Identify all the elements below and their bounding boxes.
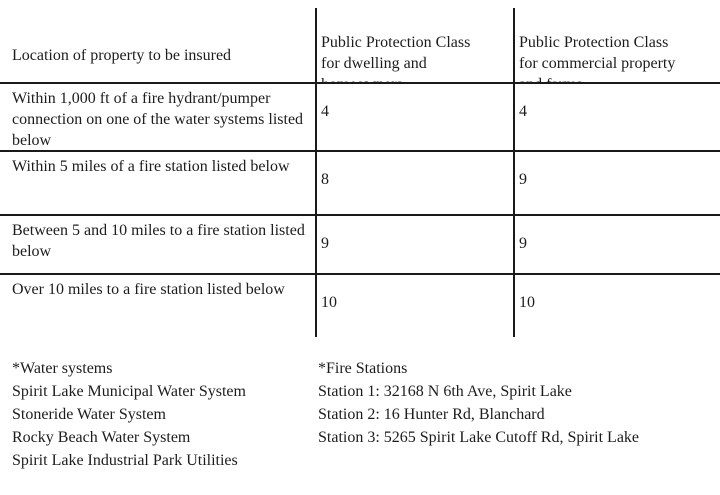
document-page: Location of property to be insured Publi… xyxy=(0,0,720,495)
table-row-commercial-class: 10 xyxy=(513,273,720,337)
row3-dwelling-value: 9 xyxy=(321,235,329,252)
table-row-location: Within 1,000 ft of a fire hydrant/pumper… xyxy=(0,82,315,150)
water-systems-list: *Water systems Spirit Lake Municipal Wat… xyxy=(12,357,312,472)
water-system-item: Spirit Lake Municipal Water System xyxy=(12,380,312,403)
table-row-commercial-class: 4 xyxy=(513,82,720,150)
row4-dwelling-value: 10 xyxy=(321,294,337,311)
table-row-dwelling-class: 10 xyxy=(315,273,513,337)
header-commercial-cell: Public Protection Class for commercial p… xyxy=(513,8,720,82)
table-row-dwelling-class: 8 xyxy=(315,150,513,214)
row2-location-text: Within 5 miles of a fire station listed … xyxy=(12,158,290,175)
header-dwelling-label: Public Protection Class for dwelling and… xyxy=(321,34,470,82)
fire-station-item: Station 1: 32168 N 6th Ave, Spirit Lake xyxy=(318,380,718,403)
row1-location-text: Within 1,000 ft of a fire hydrant/pumper… xyxy=(12,90,303,149)
header-location-label: Location of property to be insured xyxy=(12,45,231,66)
table-row-location: Over 10 miles to a fire station listed b… xyxy=(0,273,315,337)
table-row-commercial-class: 9 xyxy=(513,214,720,273)
water-system-item: Rocky Beach Water System xyxy=(12,426,312,449)
water-systems-title: *Water systems xyxy=(12,357,312,380)
ppc-table: Location of property to be insured Publi… xyxy=(0,8,720,337)
header-dwelling-cell: Public Protection Class for dwelling and… xyxy=(315,8,513,82)
fire-stations-list: *Fire Stations Station 1: 32168 N 6th Av… xyxy=(318,357,718,449)
row4-location-text: Over 10 miles to a fire station listed b… xyxy=(12,281,285,298)
row1-commercial-value: 4 xyxy=(519,103,527,120)
fire-stations-title: *Fire Stations xyxy=(318,357,718,380)
row2-commercial-value: 9 xyxy=(519,171,527,188)
header-commercial-label: Public Protection Class for commercial p… xyxy=(519,34,675,82)
row2-dwelling-value: 8 xyxy=(321,171,329,188)
water-system-item: Stoneride Water System xyxy=(12,403,312,426)
row3-commercial-value: 9 xyxy=(519,235,527,252)
fire-station-item: Station 3: 5265 Spirit Lake Cutoff Rd, S… xyxy=(318,426,718,449)
fire-station-item: Station 2: 16 Hunter Rd, Blanchard xyxy=(318,403,718,426)
table-row-location: Within 5 miles of a fire station listed … xyxy=(0,150,315,214)
table-row-dwelling-class: 9 xyxy=(315,214,513,273)
row3-location-text: Between 5 and 10 miles to a fire station… xyxy=(12,222,305,260)
row1-dwelling-value: 4 xyxy=(321,103,329,120)
table-row-dwelling-class: 4 xyxy=(315,82,513,150)
water-system-item: Spirit Lake Industrial Park Utilities xyxy=(12,449,312,472)
row4-commercial-value: 10 xyxy=(519,294,535,311)
table-row-location: Between 5 and 10 miles to a fire station… xyxy=(0,214,315,273)
header-location-cell: Location of property to be insured xyxy=(0,8,315,82)
table-row-commercial-class: 9 xyxy=(513,150,720,214)
